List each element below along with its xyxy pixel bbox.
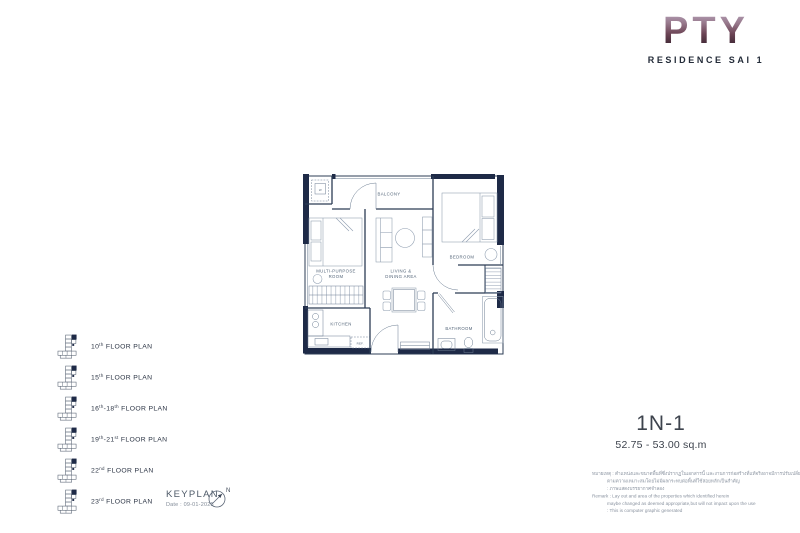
- room-bedroom: [442, 193, 501, 293]
- floor-plan-label: 22nd FLOOR PLAN: [91, 466, 154, 474]
- remark-line: : ภาพแสดงบรรยากาศจำลอง: [592, 485, 782, 492]
- remark-block: หมายเหตุ : ตำแหน่งและขนาดพื้นที่ซึ่งปราก…: [592, 470, 782, 515]
- keyplan-thumbnail-icon: [57, 334, 78, 359]
- keyplan-thumbnail-icon: [57, 489, 78, 514]
- multipurpose-label-1: MULTI-PURPOSE: [316, 269, 356, 274]
- remark-line: Remark : Lay out and area of the propert…: [592, 492, 782, 499]
- floor-plan-item[interactable]: 16th-18th FLOOR PLAN: [57, 395, 168, 421]
- remark-line: หมายเหตุ : ตำแหน่งและขนาดพื้นที่ซึ่งปราก…: [592, 470, 782, 477]
- bedroom-wardrobe: [486, 268, 502, 293]
- bathroom-label: BATHROOM: [445, 326, 472, 331]
- floor-plan-list: 10th FLOOR PLAN 15th FLOOR PLAN: [57, 333, 168, 519]
- room-kitchen: REF.: [308, 310, 370, 348]
- keyplan-thumbnail-icon: [57, 396, 78, 421]
- bedroom-label: BEDROOM: [450, 255, 475, 260]
- floor-plan-item[interactable]: 10th FLOOR PLAN: [57, 333, 168, 359]
- room-living-dining: [376, 217, 432, 350]
- remark-line: ตามความเหมาะสมโดยไม่มีผลกระทบต่อพื้นที่ใ…: [592, 477, 782, 484]
- balcony-label: BALCONY: [378, 192, 401, 197]
- kitchen-label: KITCHEN: [330, 322, 351, 327]
- living-label-2: DINING AREA: [385, 274, 417, 279]
- floor-plan-item[interactable]: 23rd FLOOR PLAN: [57, 488, 168, 514]
- unit-code: 1N-1: [585, 412, 737, 436]
- brand-subtitle: RESIDENCE SAI 1: [646, 55, 766, 65]
- living-label-1: LIVING &: [391, 269, 412, 274]
- keyplan-thumbnail-icon: [57, 427, 78, 452]
- floor-plan-label: 19th-21st FLOOR PLAN: [91, 435, 167, 443]
- washer-unit: W: [312, 180, 329, 201]
- north-label: N: [226, 488, 230, 494]
- multipurpose-label-2: ROOM: [329, 274, 344, 279]
- brand-name: PTY: [646, 12, 766, 50]
- keyplan-thumbnail-icon: [57, 365, 78, 390]
- room-multipurpose: [309, 218, 363, 304]
- floor-plan-item[interactable]: 15th FLOOR PLAN: [57, 364, 168, 390]
- washer-label: W: [319, 188, 322, 192]
- keyplan-thumbnail-icon: [57, 458, 78, 483]
- floor-plan-label: 15th FLOOR PLAN: [91, 373, 152, 381]
- brochure-page: PTY RESIDENCE SAI 1: [0, 0, 800, 533]
- floor-plan-label: 10th FLOOR PLAN: [91, 342, 152, 350]
- room-bathroom: [438, 297, 503, 353]
- unit-info: 1N-1 52.75 - 53.00 sq.m: [585, 412, 737, 451]
- interior-walls: [305, 176, 503, 354]
- floor-plan-label: 23rd FLOOR PLAN: [91, 497, 153, 505]
- unit-area: 52.75 - 53.00 sq.m: [585, 439, 737, 451]
- remark-line: maybe changed as deemed appropriate,but …: [592, 500, 782, 507]
- brand-logo: PTY RESIDENCE SAI 1: [646, 12, 766, 65]
- floor-plan-drawing: W: [292, 158, 512, 363]
- floor-plan-item[interactable]: 19th-21st FLOOR PLAN: [57, 426, 168, 452]
- floor-plan-item[interactable]: 22nd FLOOR PLAN: [57, 457, 168, 483]
- toilet: [464, 337, 472, 347]
- remark-line: : This is computer graphic generated: [592, 507, 782, 514]
- ref-label: REF.: [357, 341, 364, 345]
- north-arrow-icon: N: [205, 483, 233, 511]
- floor-plan-label: 16th-18th FLOOR PLAN: [91, 404, 168, 412]
- solid-walls: [303, 174, 504, 354]
